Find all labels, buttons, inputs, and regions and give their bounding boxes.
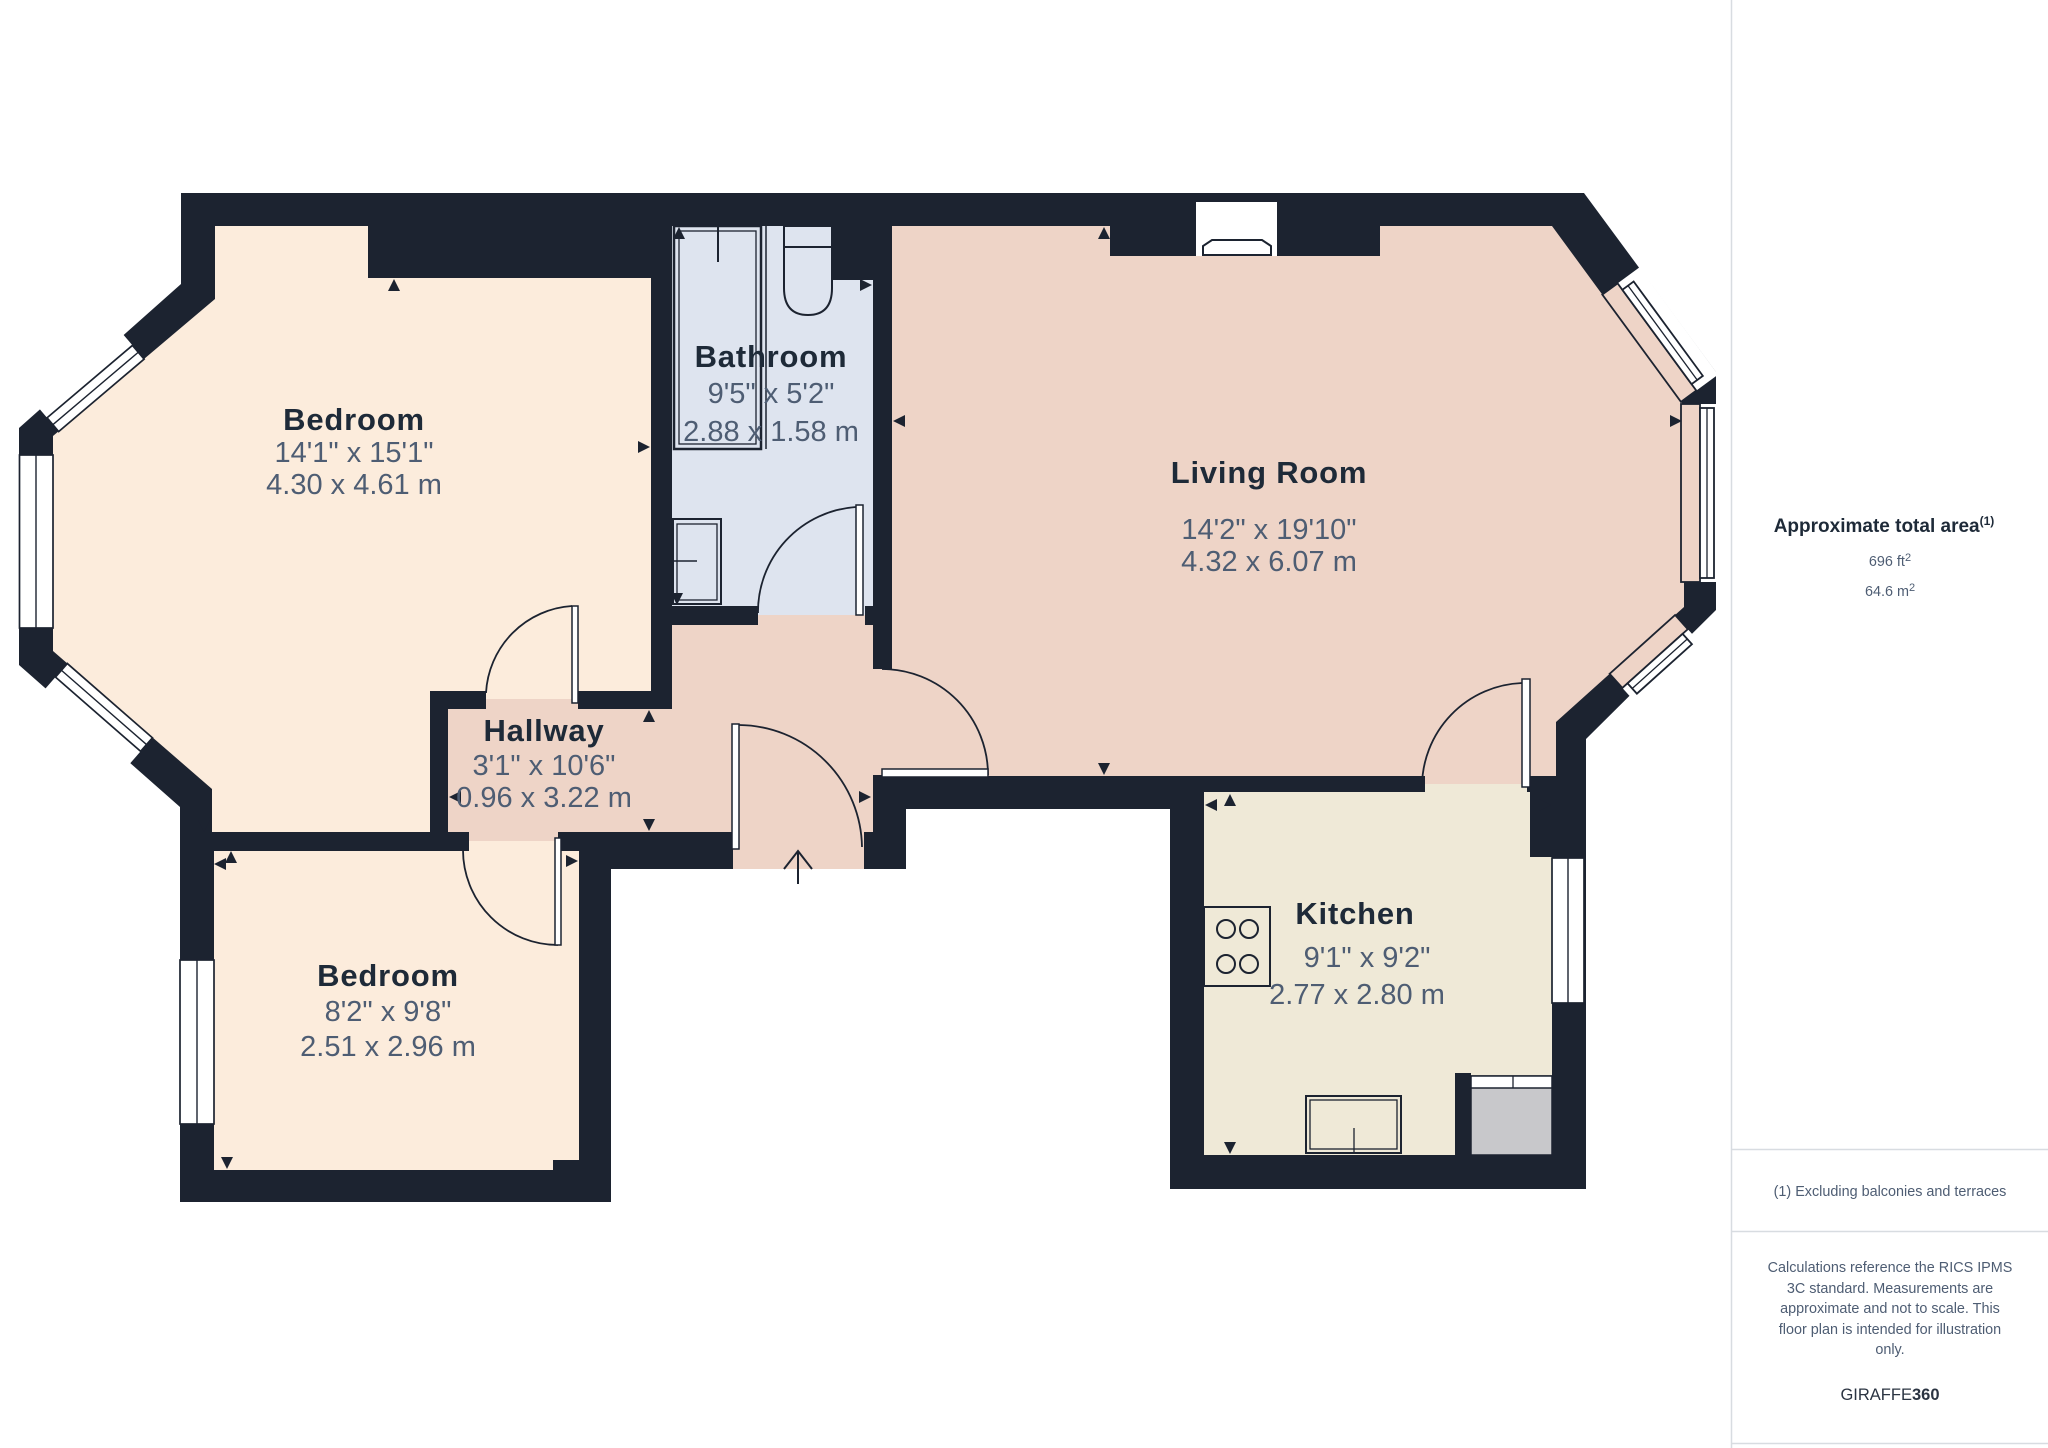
svg-text:9'1" x 9'2": 9'1" x 9'2" [1304, 942, 1431, 974]
svg-text:Bedroom: Bedroom [317, 958, 459, 993]
svg-text:floor plan is intended for ill: floor plan is intended for illustration [1779, 1322, 2001, 1338]
svg-text:2.88 x 1.58 m: 2.88 x 1.58 m [683, 416, 859, 448]
svg-text:4.32 x 6.07 m: 4.32 x 6.07 m [1181, 546, 1357, 578]
svg-text:3'1" x 10'6": 3'1" x 10'6" [473, 750, 616, 782]
svg-text:2.51 x 2.96 m: 2.51 x 2.96 m [300, 1031, 476, 1063]
svg-text:approximate and not to scale.: approximate and not to scale. This [1780, 1301, 2000, 1317]
svg-text:4.30 x 4.61 m: 4.30 x 4.61 m [266, 469, 442, 501]
svg-text:Calculations reference the RIC: Calculations reference the RICS IPMS [1768, 1260, 2013, 1276]
svg-text:9'5" x 5'2": 9'5" x 5'2" [708, 378, 835, 410]
svg-text:Bedroom: Bedroom [283, 402, 425, 437]
svg-text:Kitchen: Kitchen [1295, 896, 1414, 931]
svg-text:Bathroom: Bathroom [695, 339, 848, 374]
svg-text:GIRAFFE360: GIRAFFE360 [1840, 1386, 1939, 1404]
svg-text:Living Room: Living Room [1171, 455, 1368, 490]
svg-text:14'2" x 19'10": 14'2" x 19'10" [1181, 514, 1356, 546]
svg-text:(1) Excluding balconies and te: (1) Excluding balconies and terraces [1774, 1184, 2007, 1200]
svg-text:3C standard. Measurements are: 3C standard. Measurements are [1787, 1281, 1993, 1297]
svg-text:Hallway: Hallway [483, 713, 604, 748]
svg-text:Approximate total area(1): Approximate total area(1) [1774, 514, 1995, 537]
svg-text:14'1" x 15'1": 14'1" x 15'1" [274, 437, 433, 469]
svg-text:64.6 m2: 64.6 m2 [1865, 582, 1915, 600]
svg-text:only.: only. [1875, 1342, 1904, 1358]
svg-text:0.96 x 3.22 m: 0.96 x 3.22 m [456, 782, 632, 814]
svg-text:2.77 x 2.80 m: 2.77 x 2.80 m [1269, 979, 1445, 1011]
svg-text:8'2" x 9'8": 8'2" x 9'8" [325, 996, 452, 1028]
svg-text:696 ft2: 696 ft2 [1869, 552, 1911, 570]
